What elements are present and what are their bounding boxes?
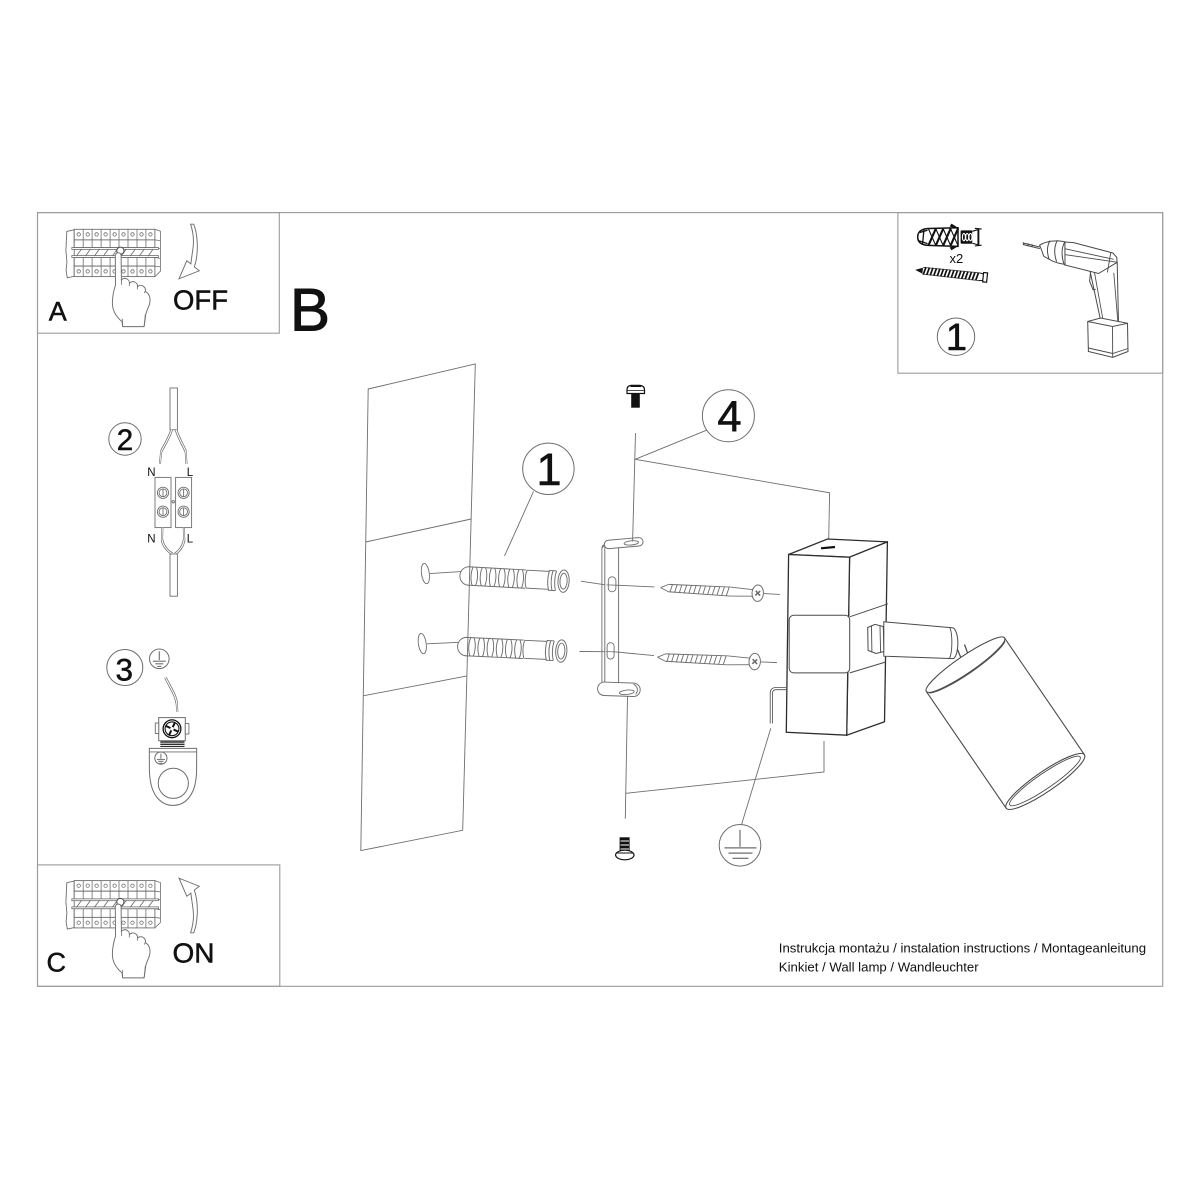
svg-text:ON: ON [173, 938, 215, 969]
svg-text:A: A [49, 296, 67, 326]
svg-text:N: N [147, 467, 155, 479]
svg-text:B: B [290, 277, 330, 344]
svg-text:Kinkiet / Wall lamp / Wandleuc: Kinkiet / Wall lamp / Wandleuchter [779, 960, 979, 975]
svg-text:4: 4 [717, 394, 741, 442]
svg-text:1: 1 [946, 317, 967, 359]
svg-text:C: C [47, 947, 67, 977]
svg-text:x2: x2 [950, 251, 964, 266]
svg-text:Instrukcja montażu / instalati: Instrukcja montażu / instalation instruc… [779, 941, 1146, 956]
svg-text:OFF: OFF [173, 284, 228, 315]
svg-text:3: 3 [116, 651, 134, 687]
svg-text:1: 1 [536, 444, 561, 495]
svg-text:L: L [187, 534, 194, 546]
svg-text:N: N [147, 534, 155, 546]
svg-text:2: 2 [117, 424, 133, 457]
